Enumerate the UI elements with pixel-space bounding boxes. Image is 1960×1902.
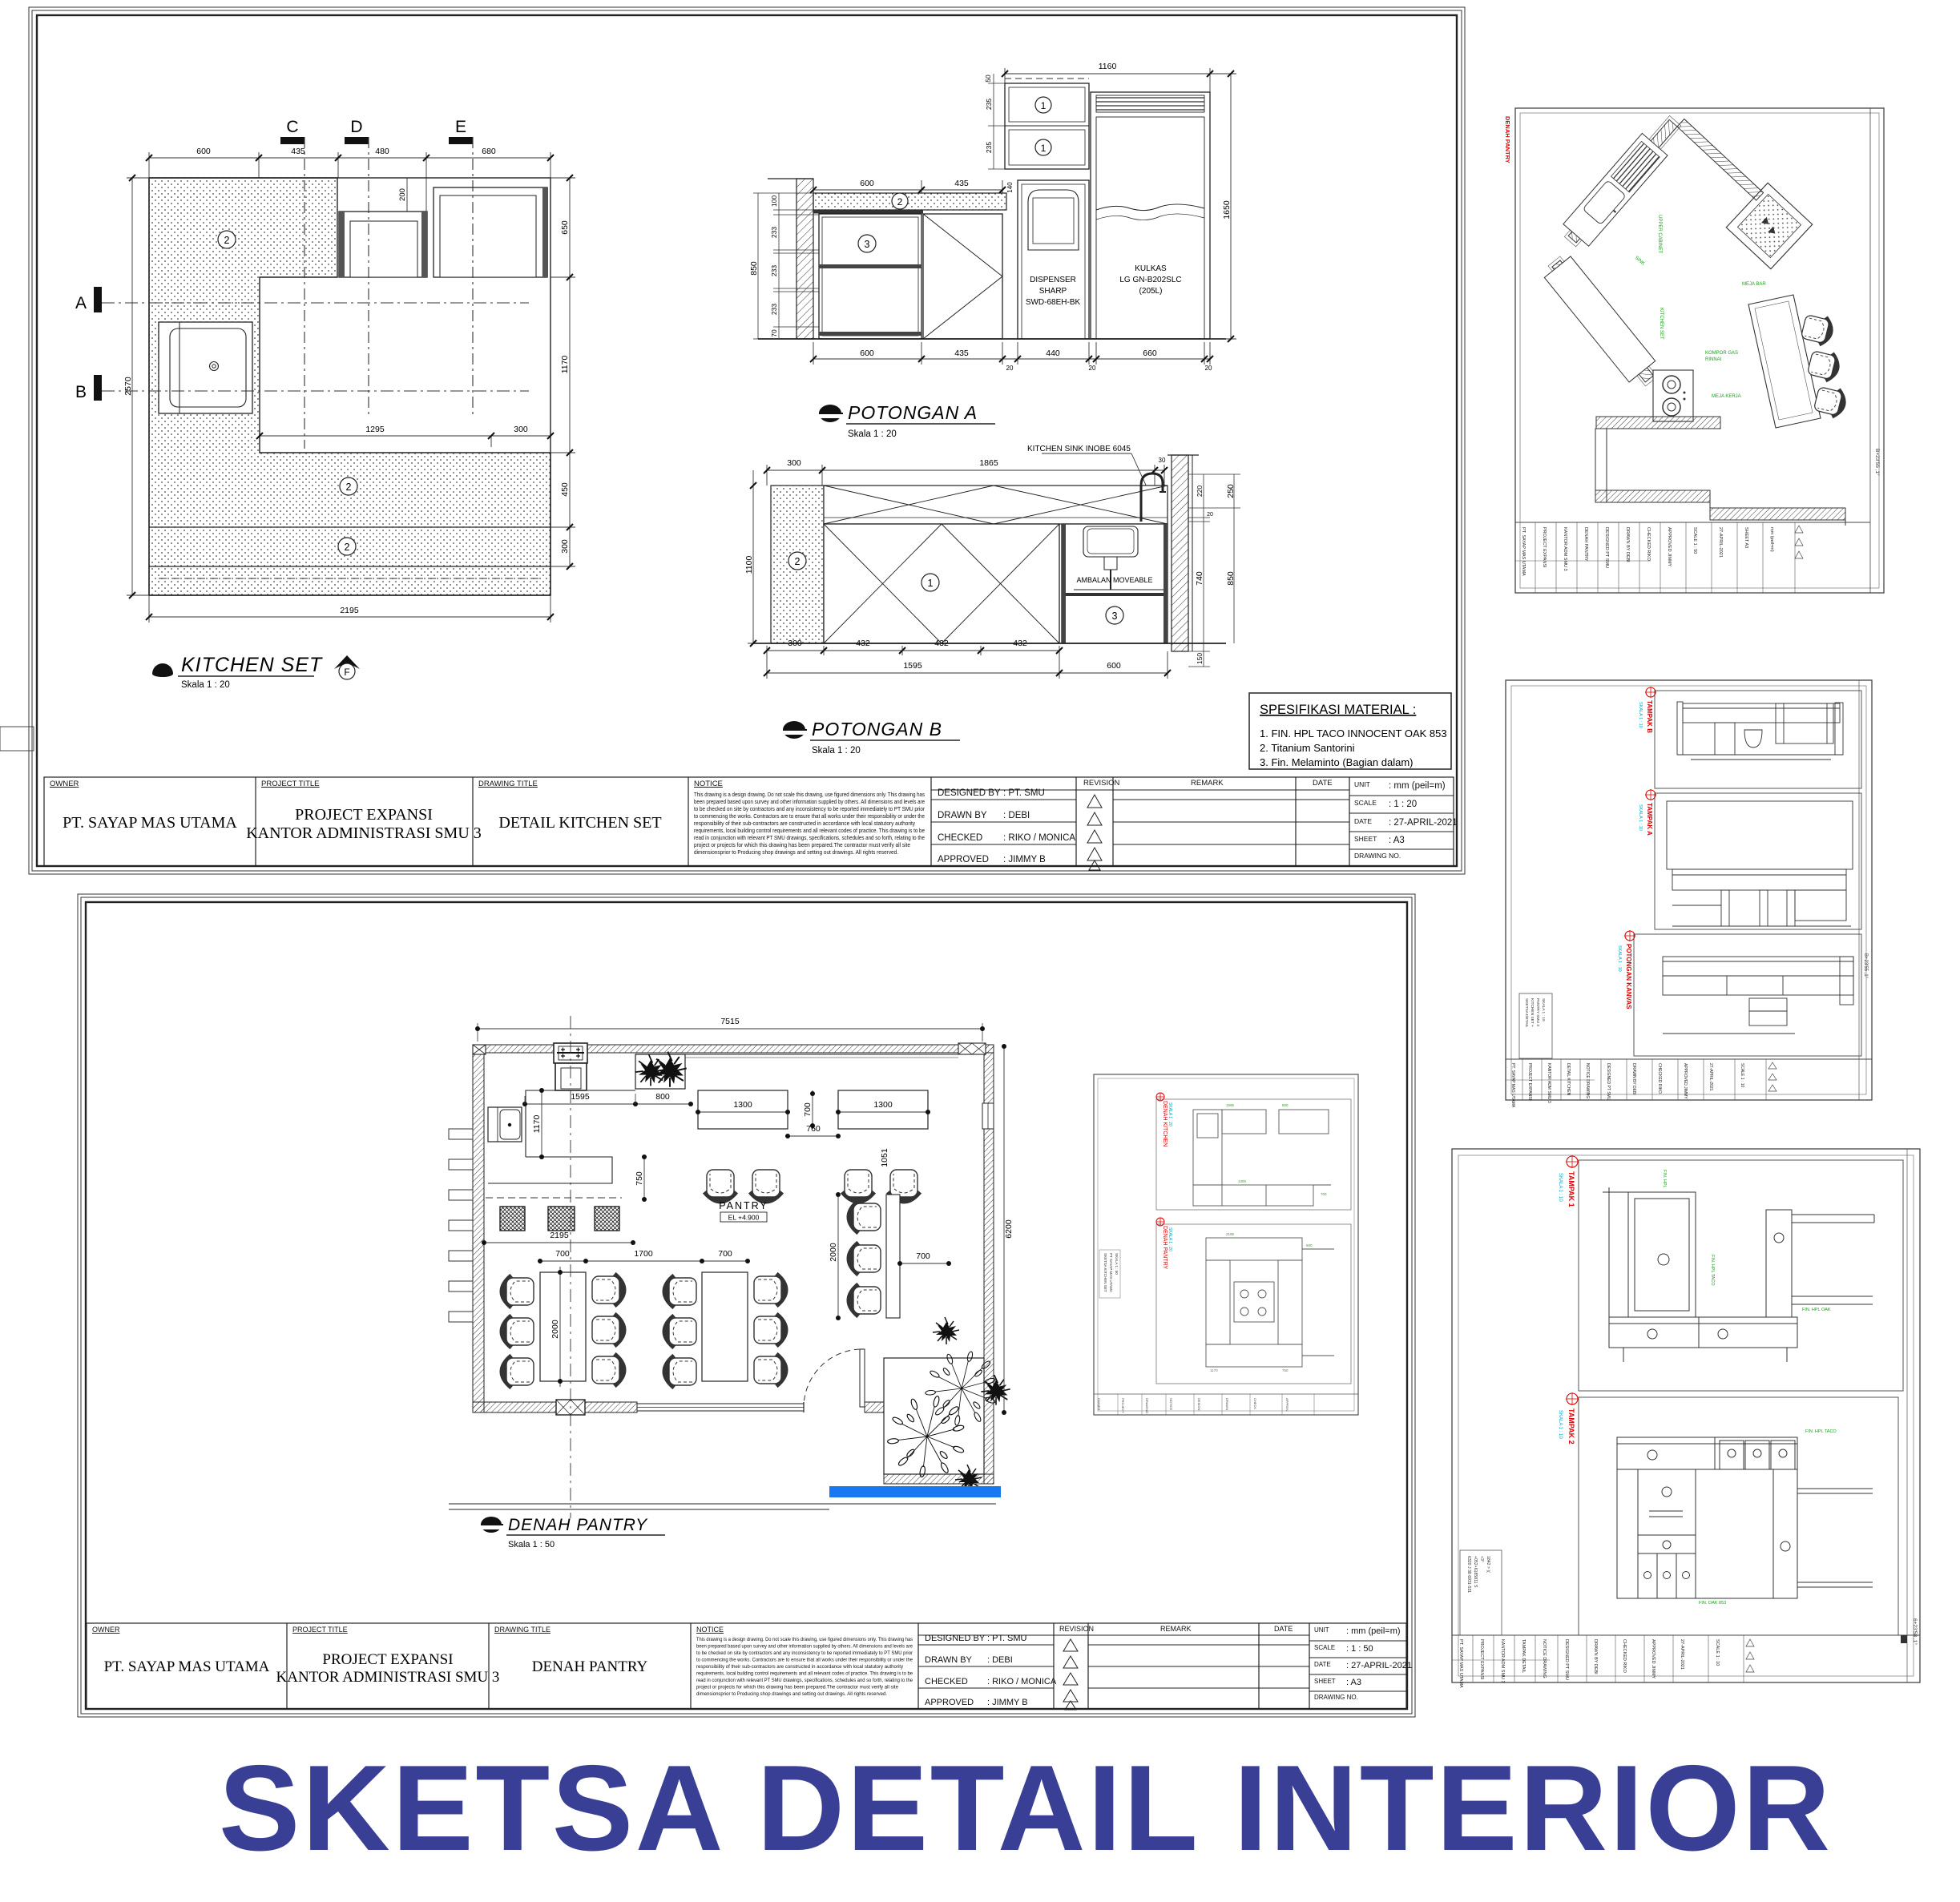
svg-text:6320 J 38 6931-531: 6320 J 38 6931-531 — [1466, 1556, 1471, 1593]
svg-text:KANTOR ADM SMU 3: KANTOR ADM SMU 3 — [1563, 527, 1567, 571]
svg-text:2570: 2570 — [123, 377, 133, 396]
svg-text:PT. SAYAP MAS UTAMA: PT. SAYAP MAS UTAMA — [63, 814, 237, 832]
svg-text:1842 > )(: 1842 > )( — [1486, 1556, 1490, 1573]
svg-text:DRAWN BY: DRAWN BY — [925, 1655, 973, 1665]
svg-text:dimensionsprior to Producing s: dimensionsprior to Producing shop drawin… — [694, 848, 898, 856]
svg-text:project or projects for which: project or projects for which this drawi… — [694, 841, 910, 848]
svg-text:1300: 1300 — [733, 1100, 752, 1110]
svg-text:SKALA 1 : 20: SKALA 1 : 20 — [1168, 1227, 1172, 1251]
svg-text:KANTOR ADMINISTRASI SMU 3: KANTOR ADMINISTRASI SMU 3 — [276, 1669, 500, 1686]
svg-text:PROJECT: PROJECT — [1121, 1398, 1125, 1413]
svg-text:NOTICE: NOTICE — [694, 780, 723, 788]
svg-text:100: 100 — [770, 195, 778, 207]
svg-text:SCALE: SCALE — [1354, 799, 1377, 807]
svg-text:SKALA 1 : 10: SKALA 1 : 10 — [1558, 1410, 1563, 1439]
svg-text:850: 850 — [749, 261, 759, 276]
svg-text:SKALA 1 : 10: SKALA 1 : 10 — [1638, 804, 1643, 831]
svg-text:REVISION: REVISION — [1083, 779, 1120, 788]
svg-text:SKALA 1 : 10: SKALA 1 : 10 — [1638, 702, 1643, 728]
svg-text:B: B — [75, 383, 87, 401]
svg-text:DATE: DATE — [1354, 817, 1372, 825]
svg-text:APPROVED JIMMY: APPROVED JIMMY — [1683, 1063, 1688, 1099]
svg-text:FIN. HPL: FIN. HPL — [1662, 1170, 1667, 1188]
svg-text:1100: 1100 — [744, 556, 754, 574]
svg-text:3. Fin. Melaminto (Bagian dala: 3. Fin. Melaminto (Bagian dalam) — [1260, 756, 1413, 768]
svg-text:EL +4.900: EL +4.900 — [728, 1214, 760, 1222]
svg-text:1. FIN. HPL TACO INNOCENT OAK: 1. FIN. HPL TACO INNOCENT OAK 853 — [1260, 727, 1447, 739]
svg-text:2195: 2195 — [1226, 1232, 1235, 1236]
svg-text:300: 300 — [788, 639, 802, 648]
svg-text:PANTRY SMU 3: PANTRY SMU 3 — [1535, 998, 1540, 1026]
svg-text:650: 650 — [560, 220, 570, 235]
svg-text:600: 600 — [860, 349, 874, 358]
svg-text:UNIT: UNIT — [1354, 780, 1370, 788]
svg-text:to commencing the works. Contr: to commencing the works. Contractors are… — [696, 1658, 913, 1663]
svg-text:: A3: : A3 — [1389, 836, 1405, 845]
svg-text:(205L): (205L) — [1139, 287, 1163, 296]
svg-text:APPROVED: APPROVED — [938, 855, 989, 864]
svg-text:responsibility of their sub-co: responsibility of their sub-contractors … — [694, 820, 915, 827]
svg-text:PROJECT EXPANSI: PROJECT EXPANSI — [295, 806, 433, 824]
svg-text:SCALE 1 : 50: SCALE 1 : 50 — [1692, 527, 1697, 554]
svg-text:REMARK: REMARK — [1191, 779, 1224, 788]
svg-text:requirements, local building c: requirements, local building control req… — [694, 827, 925, 834]
svg-text:SKALA 1 : 50: SKALA 1 : 50 — [1115, 1253, 1119, 1275]
svg-text:TAMPAK 2: TAMPAK 2 — [1567, 1408, 1575, 1445]
svg-text:DATE: DATE — [1274, 1625, 1293, 1633]
svg-text:SPESIFIKASI MATERIAL :: SPESIFIKASI MATERIAL : — [1260, 703, 1416, 717]
svg-text:2: 2 — [346, 482, 352, 493]
svg-text:300: 300 — [514, 425, 528, 434]
svg-text:KANTOR ADM SMU 3: KANTOR ADM SMU 3 — [1500, 1639, 1505, 1683]
svg-text:SKALA 1 : 20: SKALA 1 : 20 — [1168, 1102, 1172, 1126]
svg-text:750: 750 — [1282, 1368, 1289, 1372]
svg-text:POTONGAN KANVAS: POTONGAN KANVAS — [1625, 944, 1632, 1009]
svg-text:: 1 : 50: : 1 : 50 — [1346, 1644, 1373, 1654]
svg-text:+052+6185811 S: +052+6185811 S — [1473, 1556, 1478, 1588]
svg-text:600: 600 — [1306, 1243, 1313, 1247]
svg-text:SCALE 1 : 10: SCALE 1 : 10 — [1715, 1639, 1720, 1666]
svg-text:PROJECT EXPANSI: PROJECT EXPANSI — [1542, 527, 1547, 568]
svg-text:DRAWN BY: DRAWN BY — [938, 811, 987, 820]
svg-text:150: 150 — [1196, 653, 1204, 664]
svg-text:DRAWING: DRAWING — [1145, 1398, 1149, 1413]
svg-text:SKETSA DETAIL INTERIOR: SKETSA DETAIL INTERIOR — [219, 1740, 1833, 1876]
svg-text:D: D — [350, 118, 362, 136]
svg-text:DRAWING TITLE: DRAWING TITLE — [478, 780, 538, 788]
svg-text:FIN. HPL TACO: FIN. HPL TACO — [1805, 1429, 1837, 1434]
svg-text:to be checked on site by contr: to be checked on site by contractors and… — [694, 805, 925, 812]
svg-text:600: 600 — [860, 179, 874, 188]
svg-text:450: 450 — [560, 482, 570, 497]
svg-text:27-APRIL-2021: 27-APRIL-2021 — [1718, 527, 1723, 558]
svg-text:220: 220 — [1196, 486, 1204, 497]
svg-text:DRAWN BY DEBI: DRAWN BY DEBI — [1593, 1639, 1598, 1674]
svg-text:KOMPOR GAS: KOMPOR GAS — [1705, 351, 1738, 356]
svg-text:DETAIL KITCHEN: DETAIL KITCHEN — [1566, 1063, 1571, 1096]
svg-text:DATE: DATE — [1313, 779, 1333, 788]
svg-text:1595: 1595 — [1226, 1103, 1235, 1107]
svg-text:480: 480 — [375, 147, 389, 156]
svg-text:SCALE 1 : 10: SCALE 1 : 10 — [1740, 1063, 1744, 1088]
svg-text:1: 1 — [928, 578, 934, 589]
svg-text:SKALA 1 : 10: SKALA 1 : 10 — [1558, 1173, 1563, 1202]
svg-text:PT. SAYAP MAS UTAMA: PT. SAYAP MAS UTAMA — [1510, 1063, 1515, 1108]
svg-text:27-APRIL-2021: 27-APRIL-2021 — [1680, 1639, 1684, 1670]
svg-text:700: 700 — [555, 1249, 570, 1259]
svg-text:APPROVED JIMMY: APPROVED JIMMY — [1651, 1639, 1656, 1679]
svg-text:1700: 1700 — [634, 1249, 653, 1259]
svg-text:CHECKED: CHECKED — [938, 833, 982, 843]
svg-text:DRAWN: DRAWN — [1225, 1398, 1229, 1410]
svg-text:project or projects for which: project or projects for which this drawi… — [696, 1685, 898, 1690]
svg-text:: DEBI: : DEBI — [987, 1655, 1013, 1665]
svg-text:DENAH PANTRY: DENAH PANTRY — [1504, 116, 1511, 163]
svg-text:1595: 1595 — [571, 1092, 590, 1102]
svg-text:Skala 1 : 20: Skala 1 : 20 — [848, 429, 897, 439]
svg-text:APPROVED: APPROVED — [925, 1698, 974, 1707]
svg-text:700: 700 — [803, 1102, 813, 1117]
svg-text:: PT. SMU: : PT. SMU — [987, 1634, 1027, 1643]
svg-text:30: 30 — [1159, 457, 1166, 464]
svg-text:TAMPAK A: TAMPAK A — [1646, 803, 1653, 836]
svg-text:SHEET A3: SHEET A3 — [1744, 527, 1748, 548]
svg-text:6+23'58 ,1°: 6+23'58 ,1° — [1912, 1618, 1918, 1645]
svg-text:AMBALAN MOVEABLE: AMBALAN MOVEABLE — [1076, 576, 1152, 584]
svg-text:PROJECT TITLE: PROJECT TITLE — [261, 780, 320, 788]
svg-text:435: 435 — [291, 147, 305, 156]
svg-text:2: 2 — [224, 235, 230, 246]
svg-text:to commencing the works. Contr: to commencing the works. Contractors are… — [694, 812, 925, 820]
svg-text:B+23'55 ,1°: B+23'55 ,1° — [1874, 449, 1881, 476]
svg-text:435: 435 — [954, 349, 969, 358]
svg-text:3: 3 — [1112, 610, 1118, 622]
svg-text:KULKAS: KULKAS — [1135, 264, 1167, 273]
svg-text:1170: 1170 — [532, 1115, 542, 1134]
svg-text:2195: 2195 — [550, 1231, 569, 1240]
svg-text:300: 300 — [560, 539, 570, 554]
svg-text:DENAH PANTRY: DENAH PANTRY — [532, 1658, 648, 1675]
svg-text:1: 1 — [1041, 143, 1047, 154]
svg-text:20: 20 — [1205, 365, 1212, 372]
svg-text:read in conjunction with relev: read in conjunction with relevant PT SMU… — [696, 1678, 913, 1683]
svg-text:2195: 2195 — [340, 606, 359, 615]
svg-text:432: 432 — [856, 639, 870, 648]
svg-text:1650: 1650 — [1222, 200, 1232, 220]
svg-text:PT. SAYAP MAS UTAMA: PT. SAYAP MAS UTAMA — [1458, 1639, 1463, 1688]
svg-text:: PT. SMU: : PT. SMU — [1003, 788, 1045, 798]
svg-text:1865: 1865 — [979, 458, 998, 468]
svg-text:660: 660 — [1143, 349, 1157, 358]
svg-text:OWNER: OWNER — [92, 1626, 120, 1634]
svg-text:KITCHEN SET +: KITCHEN SET + — [1530, 998, 1535, 1027]
svg-text:DESIGNED PT SMU: DESIGNED PT SMU — [1606, 1063, 1611, 1101]
svg-text:700: 700 — [718, 1249, 732, 1259]
svg-text:TAMPAK 1: TAMPAK 1 — [1567, 1171, 1575, 1207]
svg-text:432: 432 — [934, 639, 949, 648]
svg-text:POTONGAN A: POTONGAN A — [848, 402, 978, 423]
svg-text:F: F — [344, 667, 349, 678]
svg-text:70: 70 — [770, 329, 778, 337]
svg-text:20: 20 — [1006, 365, 1014, 372]
svg-text:NOTICE DRAWING: NOTICE DRAWING — [1542, 1639, 1547, 1678]
svg-text:REVISION: REVISION — [1059, 1625, 1094, 1633]
svg-text:KANTOR ADMINISTRASI SMU 3: KANTOR ADMINISTRASI SMU 3 — [246, 824, 482, 842]
svg-text:DESIGNED BY: DESIGNED BY — [925, 1634, 986, 1643]
svg-text:: mm (peil=m): : mm (peil=m) — [1389, 781, 1446, 791]
svg-text:DENAH PANTRY: DENAH PANTRY — [508, 1516, 648, 1534]
svg-text:DENAH PANTRY: DENAH PANTRY — [1162, 1226, 1168, 1270]
svg-text:SHEET: SHEET — [1314, 1678, 1336, 1685]
svg-text:7515: 7515 — [720, 1017, 740, 1026]
svg-text:KANTOR ADM SMU 3: KANTOR ADM SMU 3 — [1547, 1063, 1551, 1103]
svg-text:200: 200 — [398, 188, 407, 201]
svg-text:UPPER CABINET: UPPER CABINET — [1657, 215, 1662, 254]
svg-text:1170: 1170 — [560, 356, 570, 374]
svg-text:800: 800 — [1282, 1103, 1289, 1107]
svg-text:740: 740 — [1195, 571, 1204, 586]
svg-text:DETAIL KITCHEN SET: DETAIL KITCHEN SET — [498, 814, 661, 832]
svg-text:This drawing is a design drawi: This drawing is a design drawing. Do not… — [696, 1637, 913, 1642]
svg-text:20: 20 — [1207, 512, 1213, 518]
svg-text:SKALA 1 : 10: SKALA 1 : 10 — [1617, 945, 1622, 972]
svg-text:250: 250 — [1226, 484, 1236, 498]
svg-text:CHECKED: CHECKED — [925, 1677, 968, 1686]
svg-text:DRAWING NO.: DRAWING NO. — [1354, 852, 1401, 860]
svg-text:Skala 1 : 20: Skala 1 : 20 — [812, 746, 861, 756]
svg-text:read in conjunction with relev: read in conjunction with relevant PT SMU… — [694, 834, 925, 841]
svg-text:FIN. OAK 853: FIN. OAK 853 — [1699, 1601, 1726, 1606]
svg-text:435: 435 — [954, 179, 969, 188]
svg-text:SHARP: SHARP — [1039, 287, 1067, 296]
svg-text:Skala 1 : 20: Skala 1 : 20 — [181, 680, 230, 690]
svg-text:TAMPAK DETAIL: TAMPAK DETAIL — [1521, 1639, 1526, 1673]
svg-text:UNIT: UNIT — [1314, 1626, 1329, 1634]
svg-text:DESIGN: DESIGN — [1197, 1398, 1201, 1410]
svg-text:KITCHEN SET: KITCHEN SET — [181, 654, 323, 676]
svg-text:NOTICE DRAWING: NOTICE DRAWING — [1585, 1063, 1590, 1098]
svg-text:440: 440 — [1046, 349, 1060, 358]
svg-text:20: 20 — [1089, 365, 1096, 372]
svg-text:SWD-68EH-BK: SWD-68EH-BK — [1026, 298, 1081, 307]
svg-text:LG GN-B202SLC: LG GN-B202SLC — [1119, 276, 1181, 284]
svg-text:1300: 1300 — [873, 1100, 893, 1110]
svg-text:680: 680 — [482, 147, 496, 156]
svg-text:750: 750 — [635, 1171, 644, 1186]
svg-text:300: 300 — [787, 458, 801, 468]
svg-text:: JIMMY B: : JIMMY B — [1003, 855, 1046, 864]
svg-text:KITCHEN SET: KITCHEN SET — [1659, 308, 1664, 340]
svg-text:APPROVED JIMMY: APPROVED JIMMY — [1667, 527, 1672, 567]
svg-text:APPROV: APPROV — [1285, 1398, 1289, 1412]
svg-text:2: 2 — [897, 196, 903, 208]
svg-text:CHECKED RIKO: CHECKED RIKO — [1622, 1639, 1627, 1674]
svg-text:SKETSA KITCHEN SET: SKETSA KITCHEN SET — [1103, 1253, 1107, 1292]
svg-text:been prepared based upon surve: been prepared based upon survey and othe… — [694, 798, 925, 805]
svg-text:to be checked on site by contr: to be checked on site by contractors and… — [696, 1650, 913, 1656]
svg-text:DATE: DATE — [1314, 1661, 1331, 1668]
svg-text:: DEBI: : DEBI — [1003, 811, 1030, 820]
svg-text:NOTICE: NOTICE — [696, 1626, 724, 1634]
svg-text:RINNAI: RINNAI — [1705, 357, 1722, 362]
svg-text:DRAWN BY DEBI: DRAWN BY DEBI — [1631, 1063, 1636, 1095]
svg-text:: 27-APRIL-2021: : 27-APRIL-2021 — [1389, 818, 1458, 828]
svg-text:PANTRY: PANTRY — [719, 1200, 768, 1211]
svg-text:E: E — [455, 118, 466, 136]
svg-text:DESIGNED PT SMU: DESIGNED PT SMU — [1604, 527, 1609, 568]
svg-text:PROJECT EXPANSI: PROJECT EXPANSI — [1527, 1063, 1532, 1100]
svg-text:50: 50 — [984, 75, 992, 83]
svg-text:: A3: : A3 — [1346, 1678, 1361, 1687]
svg-text:1: 1 — [1041, 100, 1047, 111]
svg-text:FIN. HPL OAK: FIN. HPL OAK — [1802, 1308, 1831, 1312]
svg-text:SHEET: SHEET — [1354, 835, 1377, 843]
svg-text:CHECKED RIKO: CHECKED RIKO — [1646, 527, 1651, 562]
svg-text:PROJECT EXPANSI: PROJECT EXPANSI — [1479, 1639, 1484, 1680]
svg-text:NOTICE: NOTICE — [1169, 1398, 1173, 1410]
svg-text:CHECKED RIKO: CHECKED RIKO — [1657, 1063, 1662, 1094]
svg-text:233: 233 — [770, 227, 778, 238]
svg-text:1300: 1300 — [1238, 1179, 1247, 1183]
svg-text:DENAH PANTRY: DENAH PANTRY — [1583, 527, 1588, 562]
svg-text:PT SAYAP MAS UTAMA: PT SAYAP MAS UTAMA — [1109, 1253, 1113, 1292]
svg-text:POTONGAN B: POTONGAN B — [812, 719, 942, 739]
svg-text:DRAWING NO.: DRAWING NO. — [1314, 1694, 1358, 1701]
svg-text:TAMPAK B: TAMPAK B — [1646, 700, 1653, 733]
svg-text:: RIKO / MONICA: : RIKO / MONICA — [1003, 833, 1075, 843]
svg-text:dimensionsprior to Producing s: dimensionsprior to Producing shop drawin… — [696, 1691, 887, 1697]
svg-text:mm (peil=m): mm (peil=m) — [1769, 527, 1774, 552]
svg-text:235: 235 — [985, 142, 993, 153]
svg-text:FIN. HPL TACO: FIN. HPL TACO — [1710, 1255, 1715, 1286]
svg-text:850: 850 — [1226, 571, 1236, 586]
svg-text:1295: 1295 — [365, 425, 385, 434]
svg-text:MEJA KERJA: MEJA KERJA — [1712, 394, 1741, 399]
svg-text:SCALE: SCALE — [1314, 1644, 1335, 1651]
svg-text:SKETSA DETAIL: SKETSA DETAIL — [1524, 998, 1529, 1028]
svg-text:432: 432 — [1013, 639, 1027, 648]
svg-text:DRAWN BY DEBI: DRAWN BY DEBI — [1625, 527, 1630, 562]
svg-text:DENAH KITCHEN: DENAH KITCHEN — [1162, 1101, 1168, 1146]
svg-text:DISPENSER: DISPENSER — [1030, 276, 1076, 284]
svg-text:: 1 : 20: : 1 : 20 — [1389, 800, 1417, 809]
svg-text:1595: 1595 — [903, 661, 922, 671]
svg-text:2: 2 — [795, 556, 801, 567]
svg-text:3: 3 — [865, 239, 870, 250]
svg-text:233: 233 — [770, 304, 778, 315]
svg-text:760: 760 — [806, 1124, 821, 1134]
svg-text:Skala 1 : 50: Skala 1 : 50 — [508, 1540, 555, 1549]
svg-text:This drawing is a design drawi: This drawing is a design drawing. Do not… — [694, 791, 925, 798]
svg-text:PT. SAYAP MAS UTAMA: PT. SAYAP MAS UTAMA — [104, 1658, 270, 1675]
svg-text:PT. SAYAP MAS UTAMA: PT. SAYAP MAS UTAMA — [1521, 527, 1526, 576]
svg-text:CHECK: CHECK — [1253, 1398, 1257, 1409]
svg-text:OWNER: OWNER — [50, 780, 79, 788]
svg-text:SKALA 1 : 10: SKALA 1 : 10 — [1541, 998, 1546, 1022]
svg-text:PROJECT EXPANSI: PROJECT EXPANSI — [322, 1651, 453, 1668]
svg-text:2000: 2000 — [829, 1243, 838, 1262]
svg-text:700: 700 — [1321, 1192, 1327, 1196]
svg-text:700: 700 — [916, 1251, 930, 1261]
svg-text:233: 233 — [770, 265, 778, 276]
svg-text:1051: 1051 — [880, 1148, 889, 1167]
svg-text:been prepared based upon surve: been prepared based upon survey and othe… — [696, 1644, 913, 1650]
svg-text:responsibility of their sub-co: responsibility of their sub-contractors … — [696, 1664, 904, 1670]
svg-text:6200: 6200 — [1004, 1219, 1014, 1239]
svg-text:2. Titanium Santorini: 2. Titanium Santorini — [1260, 742, 1355, 754]
svg-text:: mm (peil=m): : mm (peil=m) — [1346, 1626, 1401, 1636]
svg-text:B+23'55 ,1°: B+23'55 ,1° — [1863, 953, 1868, 979]
svg-text:OWNER: OWNER — [1097, 1398, 1101, 1410]
svg-text:C: C — [286, 118, 298, 136]
svg-text:: 27-APRIL-2021: : 27-APRIL-2021 — [1346, 1661, 1412, 1670]
svg-text:: JIMMY B: : JIMMY B — [987, 1698, 1028, 1707]
svg-text:1160: 1160 — [1099, 62, 1117, 71]
svg-text:REMARK: REMARK — [1160, 1625, 1192, 1633]
svg-text:DESIGNED PT SMU: DESIGNED PT SMU — [1564, 1639, 1569, 1680]
svg-text:2: 2 — [345, 542, 350, 553]
svg-text:2000: 2000 — [550, 1320, 560, 1339]
svg-text:140: 140 — [1006, 182, 1014, 193]
svg-text:A: A — [75, 294, 87, 312]
svg-text:DESIGNED BY: DESIGNED BY — [938, 788, 1001, 798]
svg-text:KITCHEN SINK INOBE 6045: KITCHEN SINK INOBE 6045 — [1027, 445, 1131, 453]
svg-text:requirements, local building c: requirements, local building control req… — [696, 1671, 913, 1677]
svg-text:+3°: +3° — [1479, 1556, 1484, 1562]
svg-text:27-APRIL-2021: 27-APRIL-2021 — [1708, 1063, 1713, 1091]
svg-text:: RIKO / MONICA: : RIKO / MONICA — [987, 1677, 1057, 1686]
svg-text:600: 600 — [196, 147, 211, 156]
svg-text:800: 800 — [655, 1092, 670, 1102]
svg-text:MEJA BAR: MEJA BAR — [1742, 282, 1766, 287]
svg-text:1170: 1170 — [1210, 1368, 1218, 1372]
svg-text:DRAWING TITLE: DRAWING TITLE — [494, 1626, 550, 1634]
svg-text:235: 235 — [985, 99, 993, 110]
svg-text:600: 600 — [1107, 661, 1121, 671]
svg-text:PROJECT TITLE: PROJECT TITLE — [292, 1626, 348, 1634]
